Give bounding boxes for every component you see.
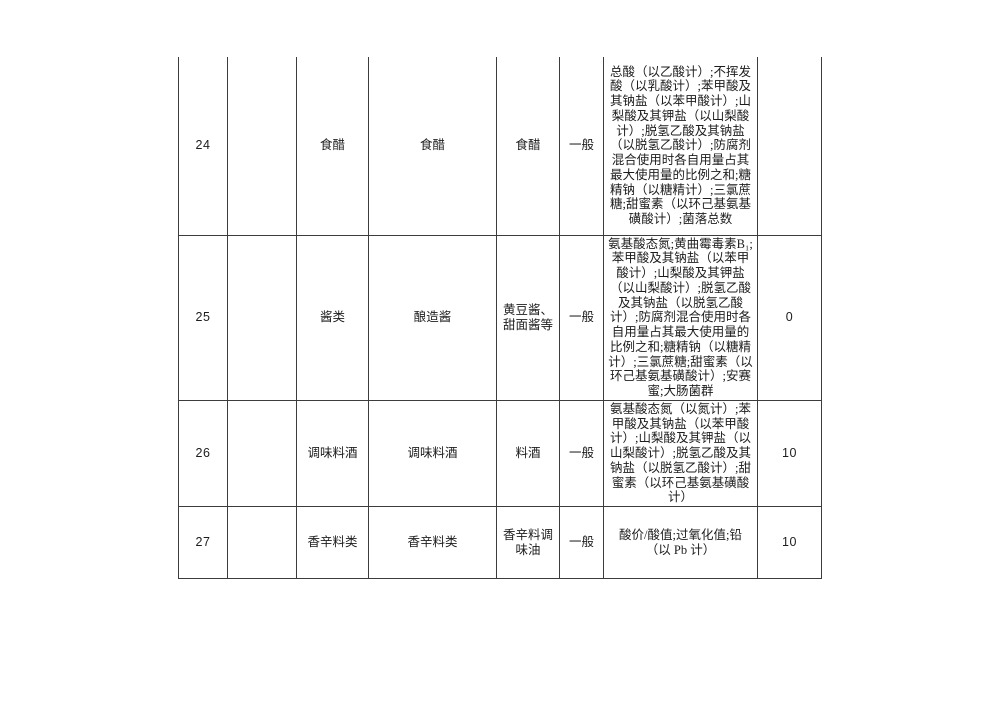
table-row: 24 食醋 食醋 食醋 一般 总酸（以乙酸计）;不挥发酸（以乳酸计）;苯甲酸及其… xyxy=(179,57,822,235)
category-cell: 香辛料类 xyxy=(297,507,369,579)
subcategory-cell: 酿造酱 xyxy=(369,235,497,400)
category-cell: 食醋 xyxy=(297,57,369,235)
test-items-cell: 酸价/酸值;过氧化值;铅（以 Pb 计） xyxy=(604,507,758,579)
subcategory-cell: 香辛料类 xyxy=(369,507,497,579)
value-cell: 10 xyxy=(758,400,822,506)
row-number-cell: 26 xyxy=(179,400,228,506)
category-group-cell xyxy=(228,507,297,579)
category-group-cell xyxy=(228,400,297,506)
item-cell: 食醋 xyxy=(497,57,560,235)
table-row: 27 香辛料类 香辛料类 香辛料调味油 一般 酸价/酸值;过氧化值;铅（以 Pb… xyxy=(179,507,822,579)
category-group-cell xyxy=(228,57,297,235)
table-row: 25 酱类 酿造酱 黄豆酱、甜面酱等 一般 氨基酸态氮;黄曲霉毒素B₁;苯甲酸及… xyxy=(179,235,822,400)
category-cell: 酱类 xyxy=(297,235,369,400)
test-items-cell: 氨基酸态氮;黄曲霉毒素B₁;苯甲酸及其钠盐（以苯甲酸计）;山梨酸及其钾盐（以山梨… xyxy=(604,235,758,400)
test-items-cell: 总酸（以乙酸计）;不挥发酸（以乳酸计）;苯甲酸及其钠盐（以苯甲酸计）;山梨酸及其… xyxy=(604,57,758,235)
value-cell xyxy=(758,57,822,235)
subcategory-cell: 食醋 xyxy=(369,57,497,235)
sample-type-cell: 一般 xyxy=(560,507,604,579)
category-cell: 调味料酒 xyxy=(297,400,369,506)
subcategory-cell: 调味料酒 xyxy=(369,400,497,506)
row-number-cell: 25 xyxy=(179,235,228,400)
item-cell: 料酒 xyxy=(497,400,560,506)
test-items-cell: 氨基酸态氮（以氮计）;苯甲酸及其钠盐（以苯甲酸计）;山梨酸及其钾盐（以山梨酸计）… xyxy=(604,400,758,506)
row-number-cell: 24 xyxy=(179,57,228,235)
row-number-cell: 27 xyxy=(179,507,228,579)
table-row: 26 调味料酒 调味料酒 料酒 一般 氨基酸态氮（以氮计）;苯甲酸及其钠盐（以苯… xyxy=(179,400,822,506)
sample-type-cell: 一般 xyxy=(560,400,604,506)
value-cell: 10 xyxy=(758,507,822,579)
inspection-table: 24 食醋 食醋 食醋 一般 总酸（以乙酸计）;不挥发酸（以乳酸计）;苯甲酸及其… xyxy=(178,57,822,579)
category-group-cell xyxy=(228,235,297,400)
document-page: { "document": { "background": "#ffffff",… xyxy=(0,0,1000,706)
sample-type-cell: 一般 xyxy=(560,235,604,400)
sample-type-cell: 一般 xyxy=(560,57,604,235)
value-cell: 0 xyxy=(758,235,822,400)
item-cell: 香辛料调味油 xyxy=(497,507,560,579)
item-cell: 黄豆酱、甜面酱等 xyxy=(497,235,560,400)
